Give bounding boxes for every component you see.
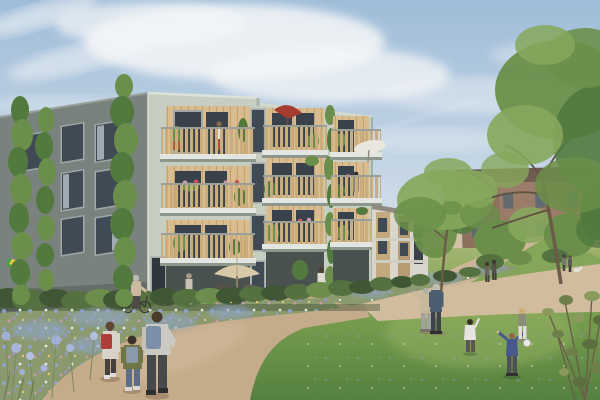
- allium-bloom: [90, 332, 98, 340]
- leg: [492, 273, 494, 280]
- head: [562, 254, 566, 258]
- backpack: [126, 347, 138, 363]
- head: [568, 255, 572, 259]
- poplar-foliage: [12, 285, 30, 305]
- lawn-flower-sprinkle: [300, 330, 600, 400]
- balcony-stack-a: [160, 106, 256, 292]
- leg: [495, 273, 497, 280]
- wing-slab: [374, 260, 426, 263]
- shoe: [506, 373, 512, 376]
- terrace-glazing: [333, 250, 369, 282]
- leg: [507, 356, 512, 374]
- poplar-foliage: [8, 147, 28, 177]
- balcony-slab: [262, 150, 328, 155]
- hedge-bush: [410, 274, 430, 286]
- balcony-slab: [330, 152, 382, 157]
- slab-shadow: [330, 157, 382, 160]
- head: [133, 275, 139, 281]
- backpack: [146, 326, 161, 349]
- poplar-foliage: [11, 232, 33, 260]
- balcony-slab: [330, 198, 382, 203]
- torso: [518, 314, 526, 326]
- poplar-foliage: [110, 152, 134, 184]
- arm: [440, 292, 444, 307]
- shoe: [110, 373, 116, 377]
- body: [568, 259, 572, 266]
- leg: [523, 326, 527, 340]
- leg: [513, 356, 518, 374]
- dog-head: [580, 267, 583, 270]
- railing-top-rail: [263, 221, 327, 223]
- allium-bloom: [26, 352, 34, 360]
- allium-bloom: [19, 369, 25, 375]
- arm: [116, 333, 120, 352]
- railing-top-rail: [331, 129, 381, 131]
- railing-top-rail: [263, 175, 327, 177]
- head: [186, 273, 192, 279]
- legs: [569, 266, 572, 272]
- allium-bloom: [66, 344, 74, 352]
- hedge-bush: [391, 276, 413, 288]
- shoe: [158, 388, 168, 393]
- bush-leaves: [559, 368, 569, 376]
- railing-top-rail: [331, 175, 381, 177]
- shoe: [420, 329, 426, 332]
- bg-shrub: [476, 254, 504, 270]
- bush-leaves: [542, 308, 554, 316]
- railing-top-rail: [161, 127, 255, 129]
- curtain: [63, 174, 69, 209]
- balcony-railing: [161, 234, 255, 259]
- balcony-slab: [160, 258, 256, 263]
- balcony-slab: [262, 198, 328, 203]
- leg: [158, 355, 167, 388]
- head: [509, 333, 515, 339]
- flower-drift: [208, 305, 252, 319]
- play-ball: [524, 340, 531, 347]
- balcony-plant: [305, 156, 319, 166]
- terrace-potted-tree: [292, 260, 308, 280]
- main-building: [0, 74, 387, 313]
- tree-canopy: [394, 197, 446, 233]
- architectural-rendering: [0, 0, 600, 400]
- head: [485, 262, 489, 266]
- poplar-foliage: [114, 123, 138, 157]
- balcony-stack-b: [262, 105, 328, 288]
- leg: [134, 369, 140, 387]
- leg: [437, 312, 442, 332]
- shoe: [125, 387, 132, 391]
- leg: [105, 359, 110, 376]
- bush-leaves: [566, 348, 578, 356]
- shoe: [518, 339, 523, 342]
- wing-window: [378, 240, 387, 254]
- torso: [506, 339, 518, 356]
- slab-shadow: [262, 249, 328, 252]
- bush-leaves: [582, 339, 598, 349]
- leg: [427, 313, 432, 330]
- balcony-slab: [160, 208, 256, 213]
- dog: [574, 268, 581, 272]
- poplar-foliage: [10, 259, 30, 285]
- poplar-foliage: [38, 269, 54, 291]
- poplar-foliage: [11, 119, 33, 151]
- hedge-bush: [433, 270, 457, 282]
- tree-canopy: [424, 158, 472, 186]
- tree-canopy: [442, 201, 462, 215]
- leg: [126, 369, 132, 388]
- poplar-foliage: [115, 74, 133, 98]
- bush-leaves: [571, 313, 585, 323]
- slab-shadow: [262, 155, 328, 158]
- leg: [471, 340, 475, 352]
- tree-canopy: [464, 188, 492, 208]
- shoe: [104, 375, 110, 379]
- head: [519, 308, 525, 314]
- wing-window: [378, 218, 387, 232]
- hedge-bush: [459, 267, 481, 277]
- leg: [485, 275, 487, 282]
- railing-top-rail: [263, 125, 327, 127]
- shoe: [512, 373, 518, 376]
- head: [492, 260, 496, 264]
- railing-top-rail: [161, 233, 255, 235]
- bg-shrub: [508, 251, 532, 265]
- curtain: [97, 125, 104, 160]
- head: [216, 121, 221, 126]
- balcony-railing: [263, 176, 327, 199]
- leg: [488, 275, 490, 282]
- poplar-foliage: [37, 215, 55, 241]
- legs: [563, 265, 566, 271]
- balcony-railing: [161, 184, 255, 209]
- leg: [466, 340, 470, 352]
- head: [128, 336, 137, 345]
- poplar-foliage: [114, 237, 136, 267]
- hand: [497, 331, 500, 334]
- poplar-foliage: [115, 289, 133, 307]
- shoe: [133, 386, 140, 390]
- allium-bloom: [2, 332, 11, 341]
- balcony-slab: [262, 244, 328, 249]
- flower-drift: [70, 309, 130, 327]
- balcony-slab: [160, 154, 256, 159]
- balcony-plant: [356, 207, 368, 215]
- bush-leaves: [573, 377, 587, 387]
- head: [318, 267, 324, 273]
- window: [62, 124, 83, 162]
- shoe: [436, 331, 442, 334]
- allium-bloom: [51, 335, 61, 345]
- backpack: [101, 334, 112, 349]
- slab-shadow: [160, 213, 256, 216]
- railing-top-rail: [161, 183, 255, 185]
- leg: [111, 359, 116, 374]
- wing-window: [400, 243, 408, 256]
- poplar-foliage: [110, 208, 134, 240]
- leg: [147, 355, 156, 390]
- balcony-railing: [161, 128, 255, 155]
- poplar-foliage: [36, 186, 54, 214]
- arm: [429, 292, 433, 307]
- balcony-railing: [331, 176, 381, 199]
- bush-leaves: [552, 330, 564, 338]
- head: [433, 284, 440, 291]
- leg: [431, 312, 436, 332]
- allium-bloom: [41, 365, 48, 372]
- torso: [131, 281, 141, 296]
- leg: [421, 313, 426, 330]
- slab-shadow: [262, 203, 328, 206]
- poplar-foliage: [35, 132, 53, 160]
- poplar-foliage: [113, 265, 133, 291]
- bush-leaves: [584, 291, 600, 301]
- parapet-step: [257, 98, 260, 106]
- poplar-foliage: [38, 107, 54, 133]
- poplar-foliage: [9, 203, 29, 233]
- balcony-railing: [263, 222, 327, 245]
- tree-canopy: [515, 25, 575, 65]
- head: [467, 319, 473, 325]
- arm: [121, 347, 125, 363]
- poplar-foliage: [38, 158, 56, 186]
- poplar-foliage: [36, 243, 54, 267]
- slab-shadow: [160, 159, 256, 162]
- torso: [464, 325, 476, 340]
- allium-bloom: [11, 343, 21, 353]
- poplar-foliage: [113, 180, 137, 212]
- bush-leaves: [559, 295, 573, 305]
- tree-canopy: [481, 152, 529, 188]
- shoe: [146, 390, 156, 395]
- poplar-foliage: [110, 96, 134, 128]
- shoe: [430, 331, 436, 334]
- poplar-foliage: [10, 174, 32, 206]
- body: [485, 266, 490, 275]
- head: [423, 288, 429, 294]
- head: [106, 322, 115, 331]
- head: [152, 312, 163, 323]
- balcony-railing: [263, 126, 327, 151]
- shadow: [463, 352, 477, 356]
- window: [62, 217, 83, 255]
- body: [492, 264, 497, 273]
- leg: [519, 326, 523, 340]
- hedge-bush: [370, 277, 394, 291]
- body: [562, 258, 566, 265]
